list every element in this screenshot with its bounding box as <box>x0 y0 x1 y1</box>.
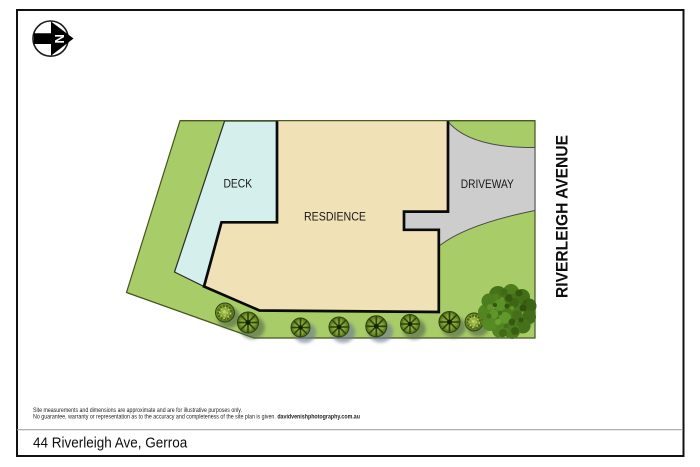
svg-text:No guarantee, warranty or repr: No guarantee, warranty or representation… <box>33 414 360 420</box>
svg-text:RIVERLEIGH AVENUE: RIVERLEIGH AVENUE <box>553 135 572 298</box>
svg-text:N: N <box>52 34 67 43</box>
svg-text:DRIVEWAY: DRIVEWAY <box>461 179 514 191</box>
svg-text:RESDIENCE: RESDIENCE <box>304 212 366 224</box>
svg-text:DECK: DECK <box>224 179 253 191</box>
svg-text:44 Riverleigh Ave, Gerroa: 44 Riverleigh Ave, Gerroa <box>33 435 188 452</box>
svg-text:Site measurements and dimensio: Site measurements and dimensions are app… <box>33 408 242 414</box>
